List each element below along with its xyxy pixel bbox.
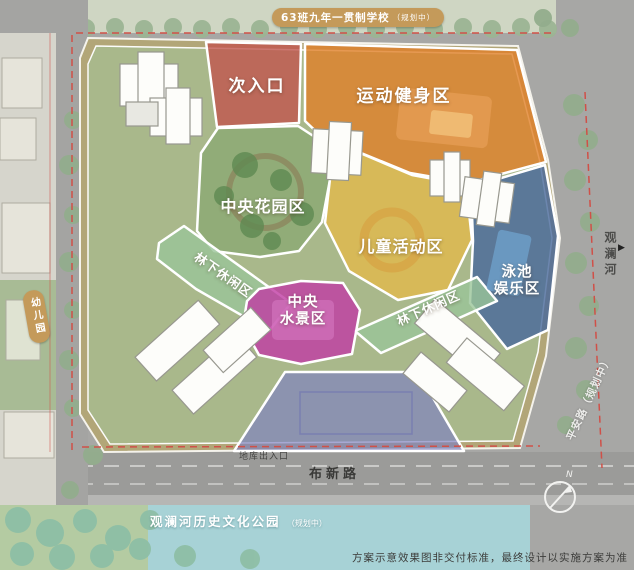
school-status-label: （规划中）	[393, 12, 436, 23]
sports-court-inner	[429, 110, 473, 138]
school-label-pill: 63班九年一贯制学校 （规划中）	[272, 8, 444, 27]
site-plan-drawing	[0, 0, 634, 570]
sidewalk	[0, 495, 634, 505]
disclaimer-text: 方案示意效果图非交付标准，最终设计以实施方案为准	[352, 550, 628, 565]
kindergarten-label: 幼儿园	[26, 296, 48, 337]
river-flow-arrow-icon: ▶	[618, 243, 625, 253]
park-label: 观澜河历史文化公园	[150, 514, 281, 529]
water-feature	[272, 300, 334, 340]
compass-north-label: N	[566, 470, 573, 480]
park-status-label: （规划中）	[287, 519, 327, 528]
river-label: 观澜河	[602, 231, 619, 279]
site-plan-canvas: 63班九年一贯制学校 （规划中） 幼儿园 次入口 运动健身区 中央花园区 儿童活…	[0, 0, 634, 570]
northwest-road	[0, 0, 68, 33]
zone-secondary-entrance	[206, 42, 301, 127]
park-label-group: 观澜河历史文化公园 （规划中）	[150, 511, 327, 530]
school-label: 63班九年一贯制学校	[281, 10, 390, 25]
